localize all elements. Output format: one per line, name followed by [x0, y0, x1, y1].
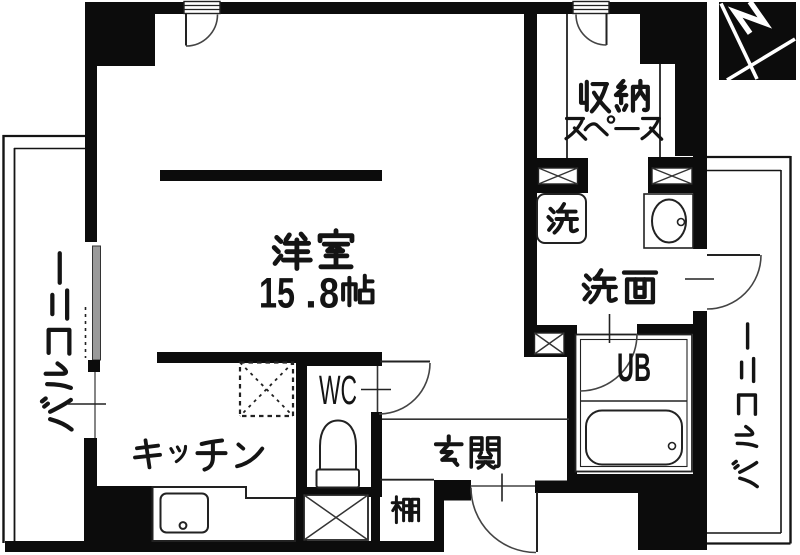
svg-text:8: 8	[319, 270, 339, 318]
svg-text:15: 15	[259, 270, 295, 318]
svg-text:.: .	[305, 270, 317, 318]
svg-text:UB: UB	[617, 346, 651, 390]
svg-text:WC: WC	[319, 367, 357, 413]
